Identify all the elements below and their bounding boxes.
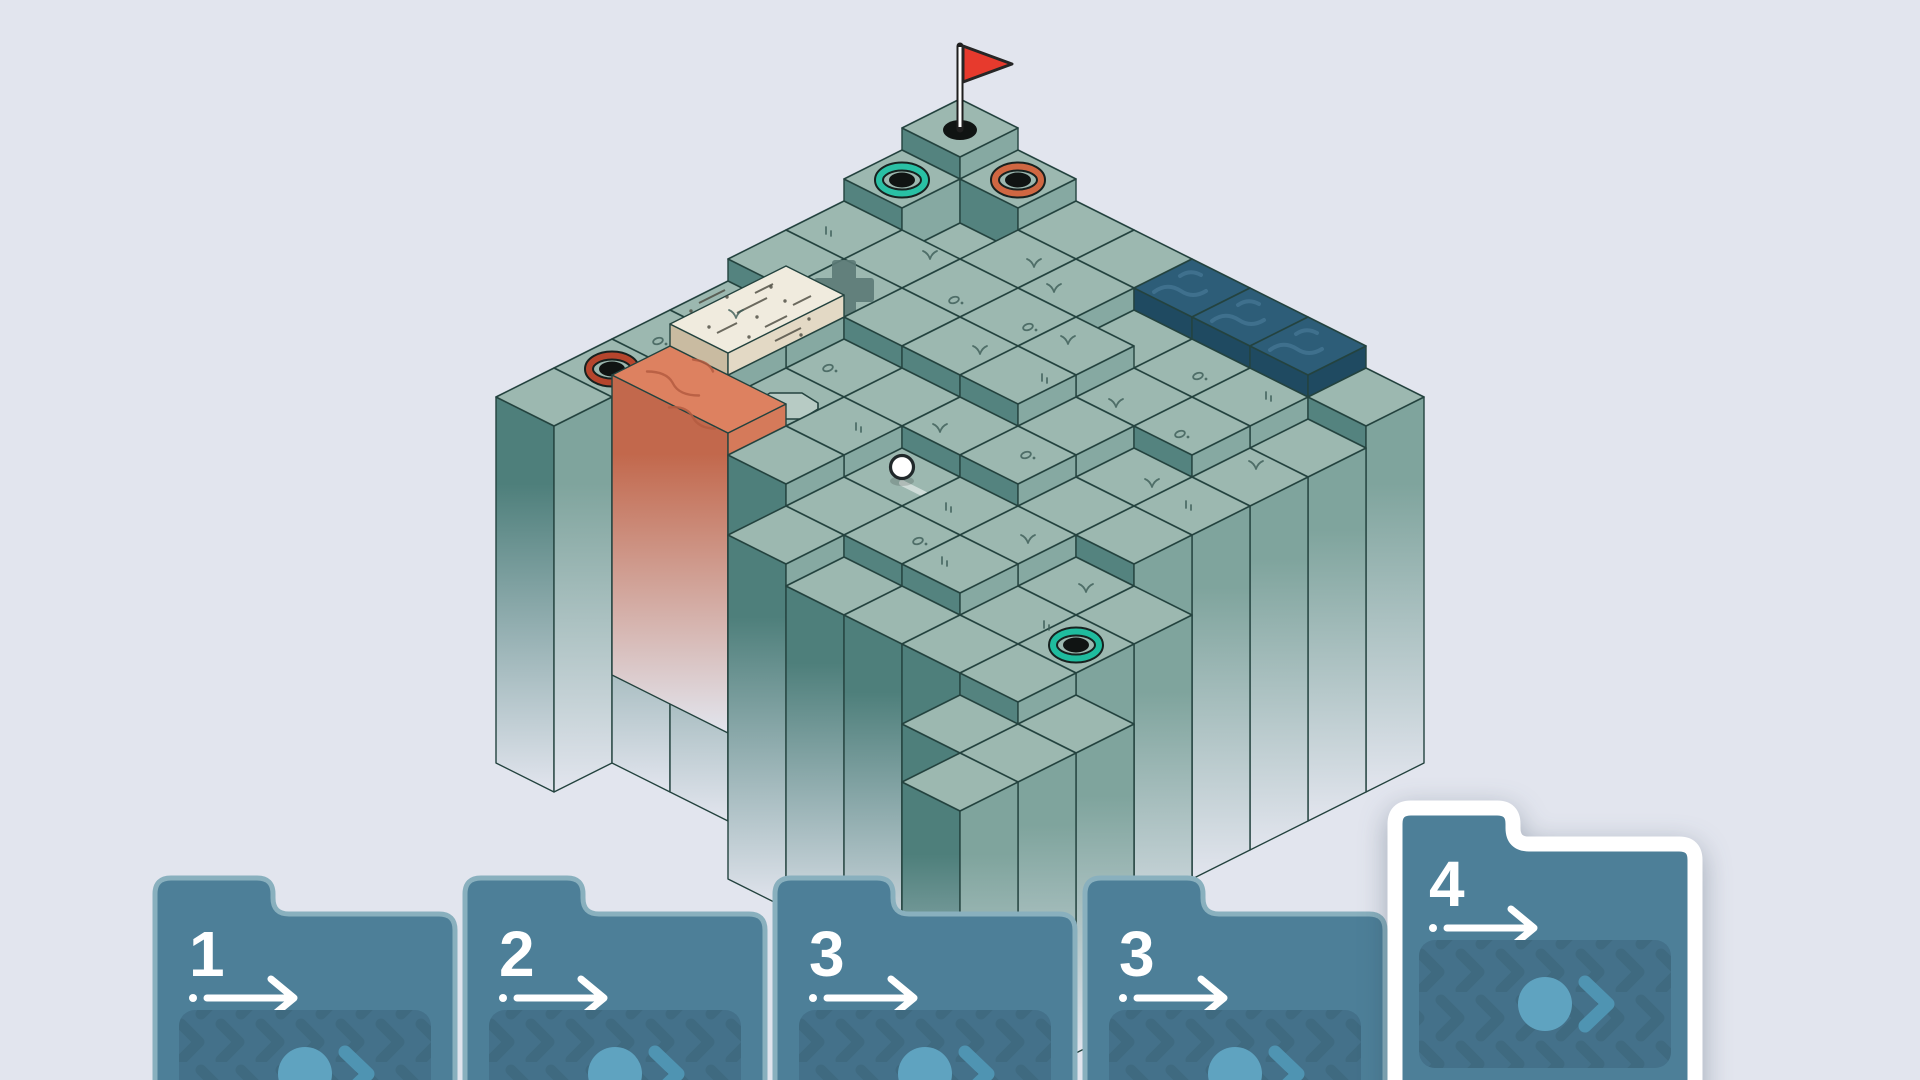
card-tread-panel [1109, 1010, 1361, 1080]
card-move-count: 2 [499, 918, 535, 990]
card-move-count: 3 [1119, 918, 1155, 990]
golf-ball [890, 456, 914, 487]
card-tread-panel [799, 1010, 1051, 1080]
card-tread-panel [489, 1010, 741, 1080]
card-ball-icon [1518, 977, 1572, 1031]
card-tread-panel [179, 1010, 431, 1080]
move-card-1[interactable]: 1 [135, 858, 475, 1080]
move-card-3[interactable]: 3 [755, 858, 1095, 1080]
card-move-count: 4 [1429, 848, 1465, 920]
move-card-4[interactable]: 3 [1065, 858, 1405, 1080]
game-stage: 12334 [0, 0, 1920, 1080]
card-move-count: 1 [189, 918, 225, 990]
card-tread-panel [1419, 940, 1671, 1068]
move-card-2[interactable]: 2 [445, 858, 785, 1080]
card-move-count: 3 [809, 918, 845, 990]
move-card-5[interactable]: 4 [1375, 788, 1715, 1080]
